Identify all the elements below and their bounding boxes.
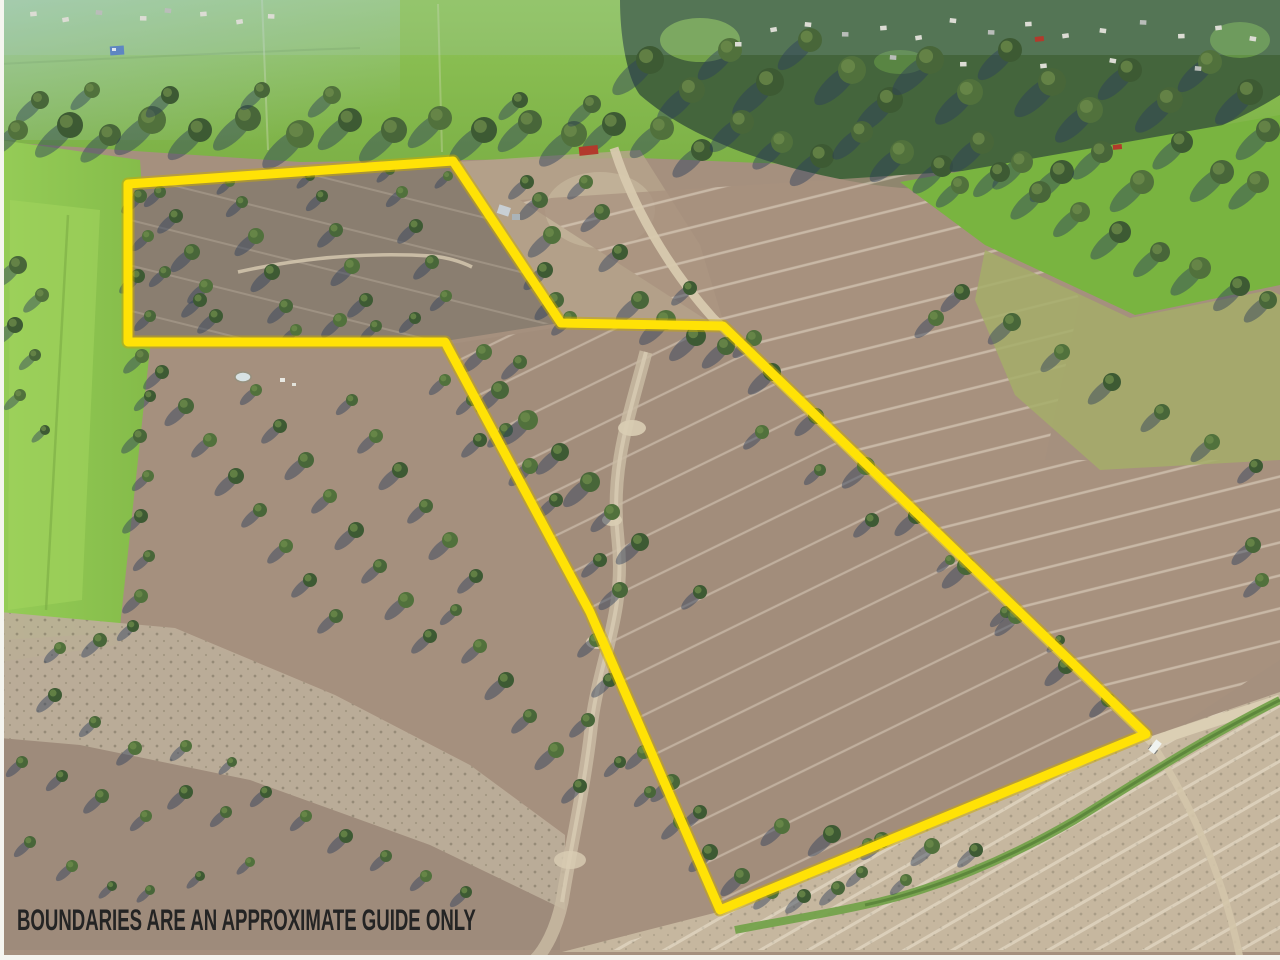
tree-canopy-highlight (471, 571, 478, 578)
tree-canopy-highlight (1041, 71, 1055, 85)
tree-canopy-highlight (145, 311, 151, 317)
house-roof (1178, 34, 1185, 39)
tree-canopy-highlight (291, 325, 297, 331)
house-roof (200, 12, 207, 17)
house-roof (1195, 66, 1202, 71)
tree-canopy-highlight (144, 551, 150, 557)
tree-canopy-highlight (522, 177, 529, 184)
tree-canopy-highlight (60, 115, 73, 128)
tree-canopy-highlight (919, 49, 933, 63)
tree-canopy-highlight (9, 319, 17, 327)
tree-canopy-highlight (95, 635, 102, 642)
tree-canopy-highlight (721, 41, 733, 53)
tree-canopy-highlight (695, 587, 702, 594)
tree-canopy-highlight (1257, 575, 1264, 582)
tree-canopy-highlight (289, 123, 303, 137)
tree-canopy-highlight (1191, 259, 1202, 270)
tree-canopy-highlight (475, 435, 482, 442)
tree-canopy-highlight (733, 113, 745, 125)
tree-canopy-highlight (160, 267, 166, 273)
house-roof (1025, 22, 1032, 27)
tree-canopy-highlight (525, 711, 532, 718)
tree-canopy-highlight (375, 561, 382, 568)
tree-canopy-highlight (960, 82, 973, 95)
tree-canopy-highlight (394, 464, 402, 472)
house-roof (988, 30, 995, 35)
tree-canopy-highlight (1105, 375, 1114, 384)
tree-canopy-highlight (331, 611, 338, 618)
tree-canopy-highlight (256, 84, 264, 92)
tree-canopy-highlight (853, 123, 864, 134)
tree-canopy-highlight (748, 332, 756, 340)
tree-canopy-highlight (1247, 539, 1255, 547)
tree-canopy-highlight (400, 594, 408, 602)
tree-canopy-highlight (237, 197, 243, 203)
tree-canopy-highlight (971, 845, 978, 852)
tree-canopy-highlight (325, 88, 334, 97)
tree-canopy-highlight (145, 391, 151, 397)
tree-canopy-highlight (1251, 461, 1258, 468)
white-shed (280, 378, 285, 382)
tree-canopy-highlight (520, 412, 530, 422)
tree-canopy-highlight (992, 164, 1002, 174)
gravel-patch (554, 851, 586, 869)
tree-canopy-highlight (211, 311, 218, 318)
tree-canopy-highlight (1213, 163, 1225, 175)
tree-canopy-highlight (128, 621, 134, 627)
tree-canopy-highlight (317, 191, 323, 197)
tree-canopy-highlight (246, 858, 251, 863)
tree-canopy-highlight (813, 147, 825, 159)
tree-canopy-highlight (255, 505, 262, 512)
photo-edge-bottom (0, 955, 1280, 960)
tree-canopy-highlight (1133, 173, 1145, 185)
tree-canopy-highlight (441, 291, 447, 297)
tree-canopy-highlight (773, 133, 784, 144)
tree-canopy-highlight (300, 454, 308, 462)
tree-canopy-highlight (1156, 406, 1164, 414)
tree-canopy-highlight (514, 94, 522, 102)
tree-canopy-highlight (736, 870, 744, 878)
tree-canopy-highlight (799, 891, 806, 898)
tree-canopy-highlight (550, 744, 558, 752)
tree-canopy-highlight (956, 286, 964, 294)
tree-canopy-highlight (575, 781, 582, 788)
tree-canopy-highlight (606, 506, 614, 514)
tree-canopy-highlight (331, 225, 338, 232)
tree-canopy-highlight (305, 575, 312, 582)
tree-canopy-highlight (1053, 163, 1065, 175)
tree-canopy-highlight (704, 846, 712, 854)
tree-canopy-highlight (384, 120, 397, 133)
tree-canopy-highlight (163, 88, 172, 97)
tree-canopy-highlight (1013, 153, 1024, 164)
tree-canopy-highlight (719, 339, 728, 348)
tree-canopy-highlight (545, 228, 554, 237)
tree-canopy-highlight (421, 871, 427, 877)
tree-canopy-highlight (15, 390, 21, 396)
red-roof-barn (1113, 144, 1122, 150)
tree-canopy-highlight (534, 194, 542, 202)
tree-canopy-highlight (371, 431, 378, 438)
tree-canopy-highlight (595, 555, 602, 562)
tree-canopy-highlight (1056, 346, 1064, 354)
tree-canopy-highlight (431, 109, 443, 121)
photo-edge-left (0, 0, 4, 960)
tree-canopy-highlight (135, 431, 142, 438)
tree-canopy-highlight (893, 143, 905, 155)
tree-canopy-highlight (933, 157, 944, 168)
house-roof (1040, 63, 1047, 68)
house-roof (842, 32, 849, 37)
tree-canopy-highlight (1201, 53, 1213, 65)
tree-canopy-highlight (757, 427, 764, 434)
tree-canopy-highlight (1173, 133, 1184, 144)
aerial-photo-listing: BOUNDARIES ARE AN APPROXIMATE GUIDE ONLY (0, 0, 1280, 960)
tree-canopy-highlight (1152, 244, 1162, 254)
tree-canopy-highlight (186, 246, 194, 254)
tree-canopy-highlight (553, 445, 562, 454)
house-roof (96, 10, 103, 15)
tree-canopy-highlight (347, 395, 353, 401)
tree-canopy-highlight (250, 230, 258, 238)
tree-canopy-highlight (181, 741, 187, 747)
tree-canopy-highlight (143, 231, 149, 237)
tree-canopy-highlight (614, 584, 622, 592)
tree-canopy-highlight (1232, 278, 1242, 288)
tree-canopy-highlight (695, 807, 702, 814)
tree-canopy-highlight (346, 260, 354, 268)
tree-canopy-highlight (30, 350, 36, 356)
tree-canopy-highlight (350, 524, 358, 532)
tree-canopy-highlight (411, 221, 418, 228)
tree-canopy-highlight (221, 807, 227, 813)
disclaimer-caption: BOUNDARIES ARE AN APPROXIMATE GUIDE ONLY (17, 906, 476, 936)
farm-dam (235, 372, 251, 382)
farm-shed-small (512, 214, 520, 220)
tree-canopy-highlight (1005, 315, 1014, 324)
house-roof (268, 14, 275, 19)
tree-canopy-highlight (801, 31, 813, 43)
tree-canopy-highlight (539, 264, 547, 272)
tree-canopy-highlight (1093, 143, 1104, 154)
tree-canopy-highlight (501, 425, 508, 432)
tree-canopy-highlight (325, 491, 332, 498)
tree-canopy-highlight (37, 290, 44, 297)
tree-canopy-highlight (461, 887, 467, 893)
tree-canopy-highlight (759, 71, 773, 85)
tree-canopy-highlight (425, 631, 432, 638)
tree-canopy-highlight (195, 295, 202, 302)
tree-canopy-highlight (301, 811, 307, 817)
tree-canopy-highlight (605, 115, 617, 127)
tree-canopy-highlight (171, 211, 178, 218)
tree-canopy-highlight (1240, 82, 1253, 95)
tree-canopy-highlight (266, 266, 274, 274)
tree-canopy-highlight (181, 787, 188, 794)
red-roof-barn (1035, 36, 1044, 42)
tree-canopy-highlight (57, 771, 63, 777)
tree-canopy-highlight (205, 435, 212, 442)
tree-canopy-highlight (17, 757, 23, 763)
house-roof (880, 26, 887, 31)
tree-canopy-highlight (33, 93, 42, 102)
tree-canopy-highlight (381, 851, 387, 857)
tree-canopy-highlight (581, 177, 588, 184)
tree-canopy-highlight (953, 178, 962, 187)
tree-canopy-highlight (157, 367, 164, 374)
tree-canopy-highlight (281, 301, 288, 308)
tree-canopy-highlight (143, 471, 149, 477)
tree-canopy-highlight (251, 385, 257, 391)
tree-canopy-highlight (25, 837, 31, 843)
tree-canopy-highlight (136, 591, 143, 598)
tree-canopy-highlight (196, 872, 201, 877)
tree-canopy-highlight (421, 501, 428, 508)
tree-canopy-highlight (135, 191, 142, 198)
house-roof (735, 42, 742, 47)
tree-canopy-highlight (815, 465, 821, 471)
tree-canopy-highlight (397, 187, 403, 193)
tree-canopy-highlight (451, 605, 457, 611)
house-roof (30, 11, 37, 16)
tree-canopy-highlight (605, 675, 612, 682)
tree-canopy-highlight (90, 717, 96, 723)
tree-canopy-highlight (341, 111, 353, 123)
blue-roof-building (110, 46, 125, 56)
tree-canopy-highlight (633, 535, 642, 544)
tree-canopy-highlight (137, 351, 144, 358)
tree-canopy-highlight (1031, 183, 1042, 194)
tree-canopy-highlight (440, 375, 446, 381)
tree-canopy-highlight (371, 321, 377, 327)
tree-canopy-highlight (275, 421, 282, 428)
house-roof (949, 18, 956, 23)
tree-canopy-highlight (410, 313, 416, 319)
tree-canopy-highlight (880, 90, 893, 103)
tree-canopy-highlight (524, 460, 532, 468)
tree-canopy-highlight (10, 122, 20, 132)
aerial-photograph (0, 0, 1280, 960)
tree-canopy-highlight (281, 541, 288, 548)
tree-canopy-highlight (825, 827, 834, 836)
tree-canopy-highlight (201, 281, 208, 288)
gravel-patch (618, 420, 646, 436)
tree-canopy-highlight (1259, 121, 1271, 133)
tree-canopy-highlight (973, 133, 985, 145)
tree-canopy-highlight (50, 690, 57, 697)
tree-canopy-highlight (776, 820, 784, 828)
tree-canopy-highlight (867, 515, 874, 522)
tree-canopy-highlight (614, 246, 622, 254)
tree-canopy-highlight (585, 97, 594, 106)
house-roof (960, 62, 967, 67)
tree-canopy-highlight (500, 674, 508, 682)
tree-canopy-highlight (136, 511, 143, 518)
tree-canopy-highlight (130, 743, 137, 750)
tree-canopy-highlight (55, 643, 61, 649)
house-roof (1215, 25, 1222, 30)
tree-canopy-highlight (1001, 41, 1013, 53)
tree-canopy-highlight (1206, 436, 1214, 444)
tree-canopy-highlight (583, 715, 590, 722)
tree-canopy-highlight (108, 882, 113, 887)
tree-canopy-highlight (361, 295, 368, 302)
tree-canopy-highlight (653, 119, 665, 131)
blue-roof-glint (112, 48, 116, 51)
house-roof (890, 55, 897, 60)
tree-canopy-highlight (1080, 100, 1093, 113)
tree-canopy-highlight (1111, 223, 1122, 234)
tree-canopy-highlight (639, 49, 653, 63)
tree-canopy-highlight (86, 84, 94, 92)
tree-canopy-highlight (582, 474, 592, 484)
tree-canopy-highlight (633, 293, 642, 302)
tree-canopy-highlight (926, 840, 934, 848)
house-roof (1099, 28, 1106, 33)
house-roof (1062, 33, 1069, 38)
tree-canopy-highlight (478, 346, 486, 354)
tree-canopy-highlight (444, 534, 452, 542)
tree-canopy-highlight (427, 257, 434, 264)
tree-canopy-highlight (1072, 204, 1082, 214)
tree-canopy-highlight (474, 120, 487, 133)
tree-canopy-highlight (1160, 90, 1173, 103)
tree-canopy-highlight (857, 867, 863, 873)
house-roof (164, 8, 171, 13)
tree-canopy-highlight (261, 787, 267, 793)
tree-canopy-highlight (841, 59, 855, 73)
tree-canopy-highlight (645, 787, 651, 793)
tree-canopy-highlight (341, 831, 348, 838)
tree-canopy-highlight (615, 757, 621, 763)
tree-canopy-highlight (833, 883, 840, 890)
tree-canopy-highlight (67, 861, 73, 867)
tree-canopy-highlight (596, 206, 604, 214)
tree-canopy-highlight (230, 470, 238, 478)
white-shed (292, 383, 296, 386)
tree-canopy-highlight (1121, 61, 1133, 73)
tree-canopy-highlight (493, 383, 502, 392)
tree-canopy-highlight (335, 315, 342, 322)
tree-canopy-highlight (191, 121, 203, 133)
tree-canopy-highlight (515, 357, 522, 364)
tree-canopy-highlight (475, 641, 482, 648)
tree-canopy-highlight (41, 426, 46, 431)
tree-canopy-highlight (685, 283, 692, 290)
tree-canopy-highlight (901, 875, 907, 881)
tree-canopy-highlight (930, 312, 938, 320)
tree-canopy-highlight (521, 113, 533, 125)
tree-canopy-highlight (141, 811, 147, 817)
tree-canopy-highlight (1249, 173, 1260, 184)
haze-overlay-top (0, 0, 1280, 55)
tree-canopy-highlight (693, 141, 704, 152)
tree-canopy-highlight (11, 258, 20, 267)
tree-canopy-highlight (97, 791, 104, 798)
tree-canopy-highlight (228, 758, 233, 763)
tree-canopy-highlight (101, 126, 112, 137)
tree-canopy-highlight (682, 80, 695, 93)
tree-canopy-highlight (180, 400, 188, 408)
tree-canopy-highlight (444, 172, 449, 177)
house-roof (805, 22, 812, 27)
house-roof (1140, 20, 1147, 25)
tree-canopy-highlight (1261, 293, 1270, 302)
tree-canopy-highlight (146, 886, 151, 891)
tree-canopy-highlight (551, 495, 558, 502)
house-roof (140, 16, 147, 21)
tree-canopy-highlight (946, 556, 951, 561)
